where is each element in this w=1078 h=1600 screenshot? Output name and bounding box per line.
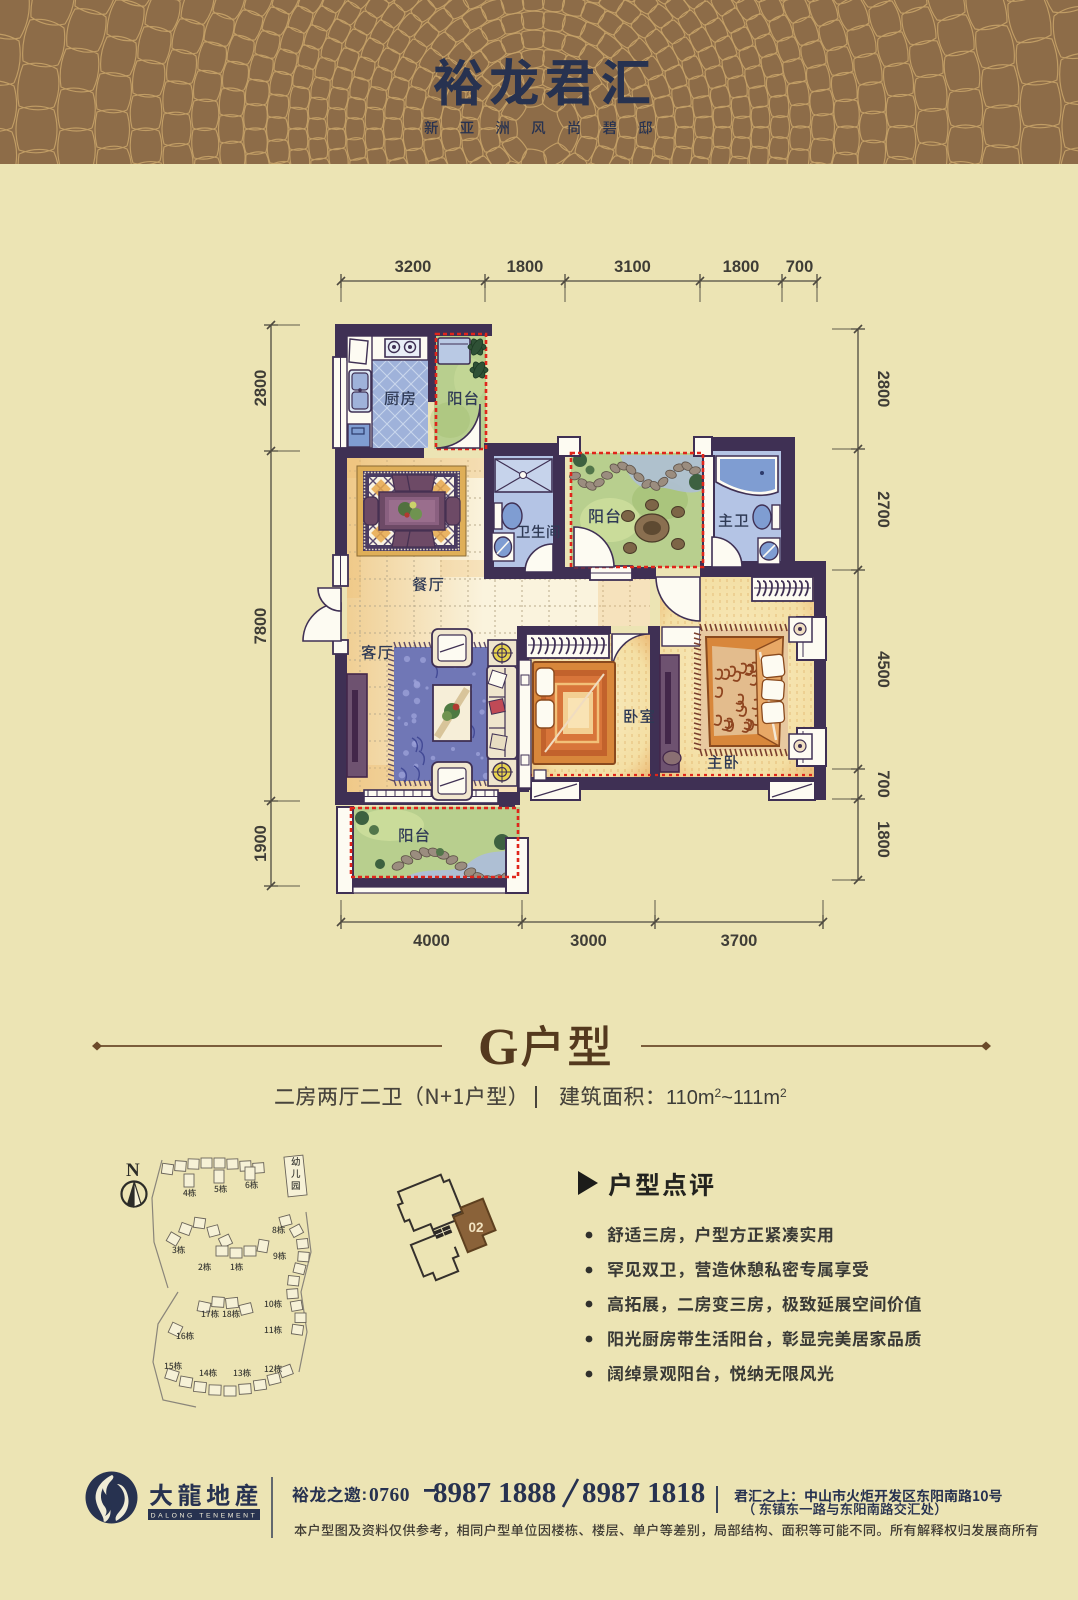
svg-text:4500: 4500 <box>874 651 892 688</box>
svg-text:1800: 1800 <box>874 821 892 858</box>
svg-text:3700: 3700 <box>721 932 758 950</box>
svg-text:3000: 3000 <box>570 932 607 950</box>
svg-text:700: 700 <box>786 258 814 276</box>
svg-text:1900: 1900 <box>252 825 270 862</box>
svg-text:1800: 1800 <box>507 258 544 276</box>
svg-text:8987 1888: 8987 1888 <box>433 1477 556 1509</box>
svg-text:3200: 3200 <box>395 258 432 276</box>
svg-text:3100: 3100 <box>614 258 651 276</box>
svg-text:N: N <box>126 1160 140 1181</box>
svg-text:G: G <box>478 1019 518 1076</box>
svg-text:700: 700 <box>874 770 892 798</box>
svg-text:7800: 7800 <box>252 608 270 645</box>
svg-text:2700: 2700 <box>874 491 892 528</box>
svg-text:DALONG TENEMENT: DALONG TENEMENT <box>151 1513 258 1520</box>
svg-text:2800: 2800 <box>874 371 892 408</box>
svg-text::: : <box>362 1485 368 1504</box>
svg-text:02: 02 <box>468 1220 483 1235</box>
svg-text:2800: 2800 <box>252 370 270 407</box>
svg-text:8987 1818: 8987 1818 <box>582 1477 705 1509</box>
svg-text:1800: 1800 <box>723 258 760 276</box>
svg-text:0760: 0760 <box>369 1485 410 1506</box>
svg-text:4000: 4000 <box>413 932 450 950</box>
svg-text:110m2~111m2: 110m2~111m2 <box>666 1086 787 1109</box>
